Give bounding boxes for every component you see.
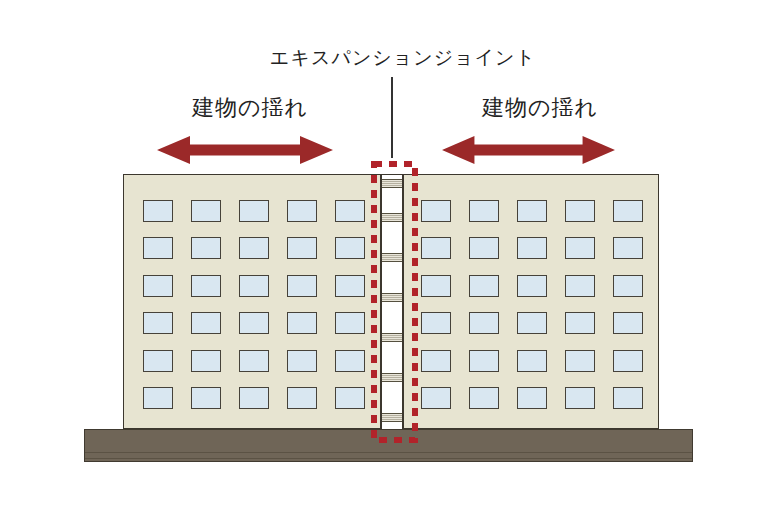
building-window	[517, 200, 547, 222]
building-window	[469, 312, 499, 334]
building-window	[517, 275, 547, 297]
building-window	[143, 237, 173, 259]
left-sway-label: 建物の揺れ	[192, 93, 308, 123]
building-window	[239, 275, 269, 297]
expansion-joint-dashed-outline	[362, 152, 422, 449]
building-window	[191, 350, 221, 372]
building-window	[565, 350, 595, 372]
building-window	[239, 387, 269, 409]
building-window	[143, 275, 173, 297]
building-window	[613, 387, 643, 409]
building-window	[335, 387, 365, 409]
building-window	[335, 312, 365, 334]
building-window	[469, 200, 499, 222]
building-window	[421, 350, 451, 372]
building-window	[335, 350, 365, 372]
building-window	[191, 200, 221, 222]
building-window	[287, 350, 317, 372]
right-sway-label: 建物の揺れ	[482, 93, 598, 123]
building-window	[565, 312, 595, 334]
building-window	[469, 275, 499, 297]
expansion-joint-diagram: エキスパンションジョイント 建物の揺れ 建物の揺れ	[0, 0, 780, 520]
leader-line	[391, 77, 393, 158]
building-window	[191, 237, 221, 259]
right-sway-arrow-icon	[442, 135, 615, 165]
building-window	[517, 312, 547, 334]
building-window	[517, 387, 547, 409]
building-window	[421, 312, 451, 334]
building-window	[239, 312, 269, 334]
building-window	[335, 275, 365, 297]
left-sway-arrow-icon	[157, 135, 333, 165]
building-window	[421, 275, 451, 297]
building-window	[565, 387, 595, 409]
left-building	[123, 174, 381, 429]
building-window	[335, 237, 365, 259]
right-building	[403, 174, 659, 429]
building-window	[421, 387, 451, 409]
building-window	[469, 387, 499, 409]
building-window	[287, 275, 317, 297]
building-window	[143, 387, 173, 409]
building-window	[469, 350, 499, 372]
building-window	[613, 275, 643, 297]
building-window	[143, 312, 173, 334]
building-window	[613, 350, 643, 372]
building-window	[191, 387, 221, 409]
building-window	[335, 200, 365, 222]
building-window	[421, 237, 451, 259]
building-window	[287, 237, 317, 259]
building-window	[613, 312, 643, 334]
building-window	[287, 312, 317, 334]
building-window	[421, 200, 451, 222]
building-window	[287, 200, 317, 222]
ground-lines	[85, 452, 692, 459]
building-window	[565, 237, 595, 259]
building-window	[565, 275, 595, 297]
building-window	[287, 387, 317, 409]
building-window	[191, 275, 221, 297]
building-window	[613, 200, 643, 222]
building-window	[191, 312, 221, 334]
building-window	[239, 350, 269, 372]
building-window	[469, 237, 499, 259]
building-window	[517, 350, 547, 372]
building-window	[565, 200, 595, 222]
building-window	[613, 237, 643, 259]
building-window	[239, 200, 269, 222]
diagram-title: エキスパンションジョイント	[270, 45, 536, 71]
building-window	[143, 350, 173, 372]
building-window	[239, 237, 269, 259]
building-window	[143, 200, 173, 222]
building-window	[517, 237, 547, 259]
